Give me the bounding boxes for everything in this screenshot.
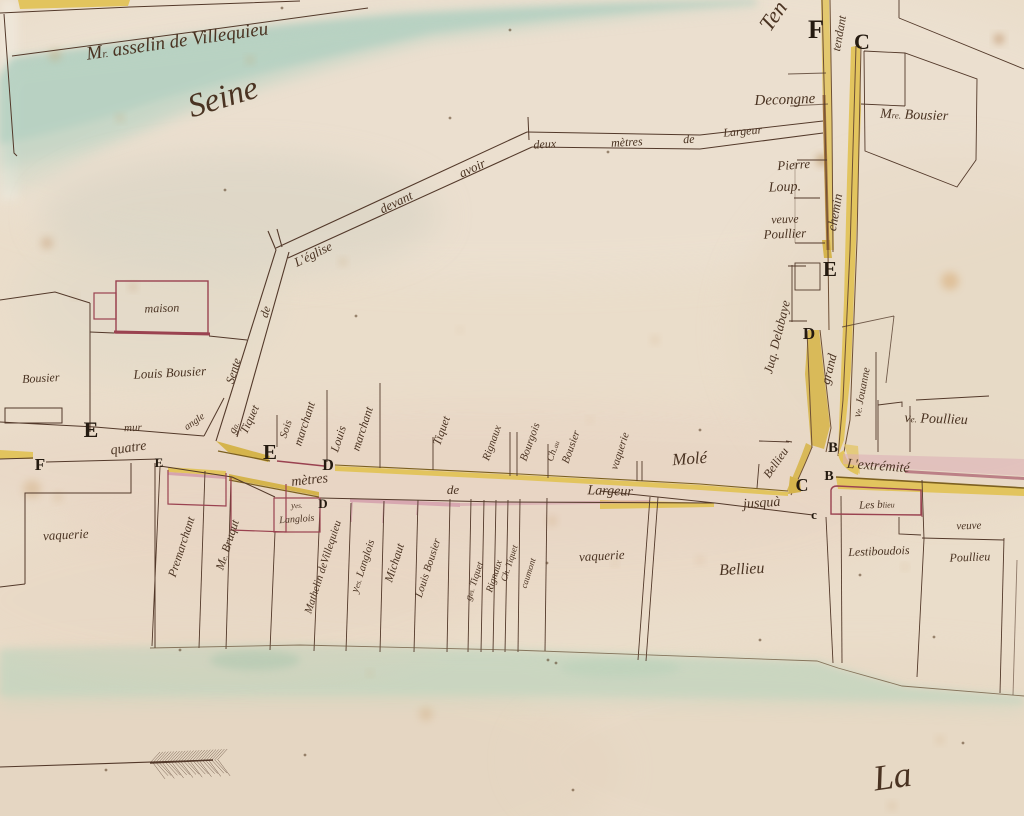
svg-text:Lestiboudois: Lestiboudois — [847, 543, 910, 559]
svg-text:vaquerie: vaquerie — [43, 526, 89, 543]
svg-text:jusquà: jusquà — [741, 495, 781, 513]
svg-text:Pierre: Pierre — [776, 156, 811, 173]
svg-text:Decongne: Decongne — [753, 91, 816, 109]
svg-text:D: D — [318, 496, 327, 511]
svg-text:Loup.: Loup. — [767, 179, 801, 195]
svg-text:Molé: Molé — [671, 448, 710, 470]
svg-text:Mre. Bousier: Mre. Bousier — [879, 107, 949, 124]
svg-text:B: B — [824, 469, 833, 484]
svg-text:de: de — [683, 132, 696, 147]
svg-text:B: B — [828, 440, 838, 456]
svg-text:maison: maison — [144, 300, 179, 315]
svg-text:C: C — [796, 475, 809, 495]
svg-text:veuve: veuve — [956, 520, 982, 533]
svg-text:Largeur: Largeur — [586, 483, 633, 500]
svg-text:F: F — [808, 15, 824, 44]
svg-text:deux: deux — [533, 136, 557, 151]
svg-text:E: E — [263, 440, 277, 464]
svg-text:mur: mur — [124, 422, 143, 435]
svg-text:veuve: veuve — [771, 212, 799, 227]
svg-text:vaquerie: vaquerie — [579, 547, 625, 564]
svg-text:Poullieu: Poullieu — [948, 549, 990, 564]
svg-text:Bousier: Bousier — [22, 370, 60, 386]
svg-text:Bellieu: Bellieu — [719, 560, 765, 579]
svg-text:E: E — [823, 257, 837, 281]
svg-text:yes.: yes. — [290, 500, 303, 511]
svg-text:D: D — [322, 457, 334, 474]
svg-text:c: c — [811, 507, 817, 522]
svg-text:C: C — [854, 29, 870, 54]
svg-text:La: La — [870, 754, 914, 799]
svg-text:mètres: mètres — [611, 134, 644, 150]
svg-text:E: E — [84, 417, 99, 442]
svg-text:de: de — [447, 482, 460, 497]
svg-text:F: F — [35, 455, 45, 474]
svg-text:E: E — [155, 455, 164, 470]
svg-text:Poullier: Poullier — [762, 225, 807, 242]
svg-text:D: D — [803, 324, 815, 343]
